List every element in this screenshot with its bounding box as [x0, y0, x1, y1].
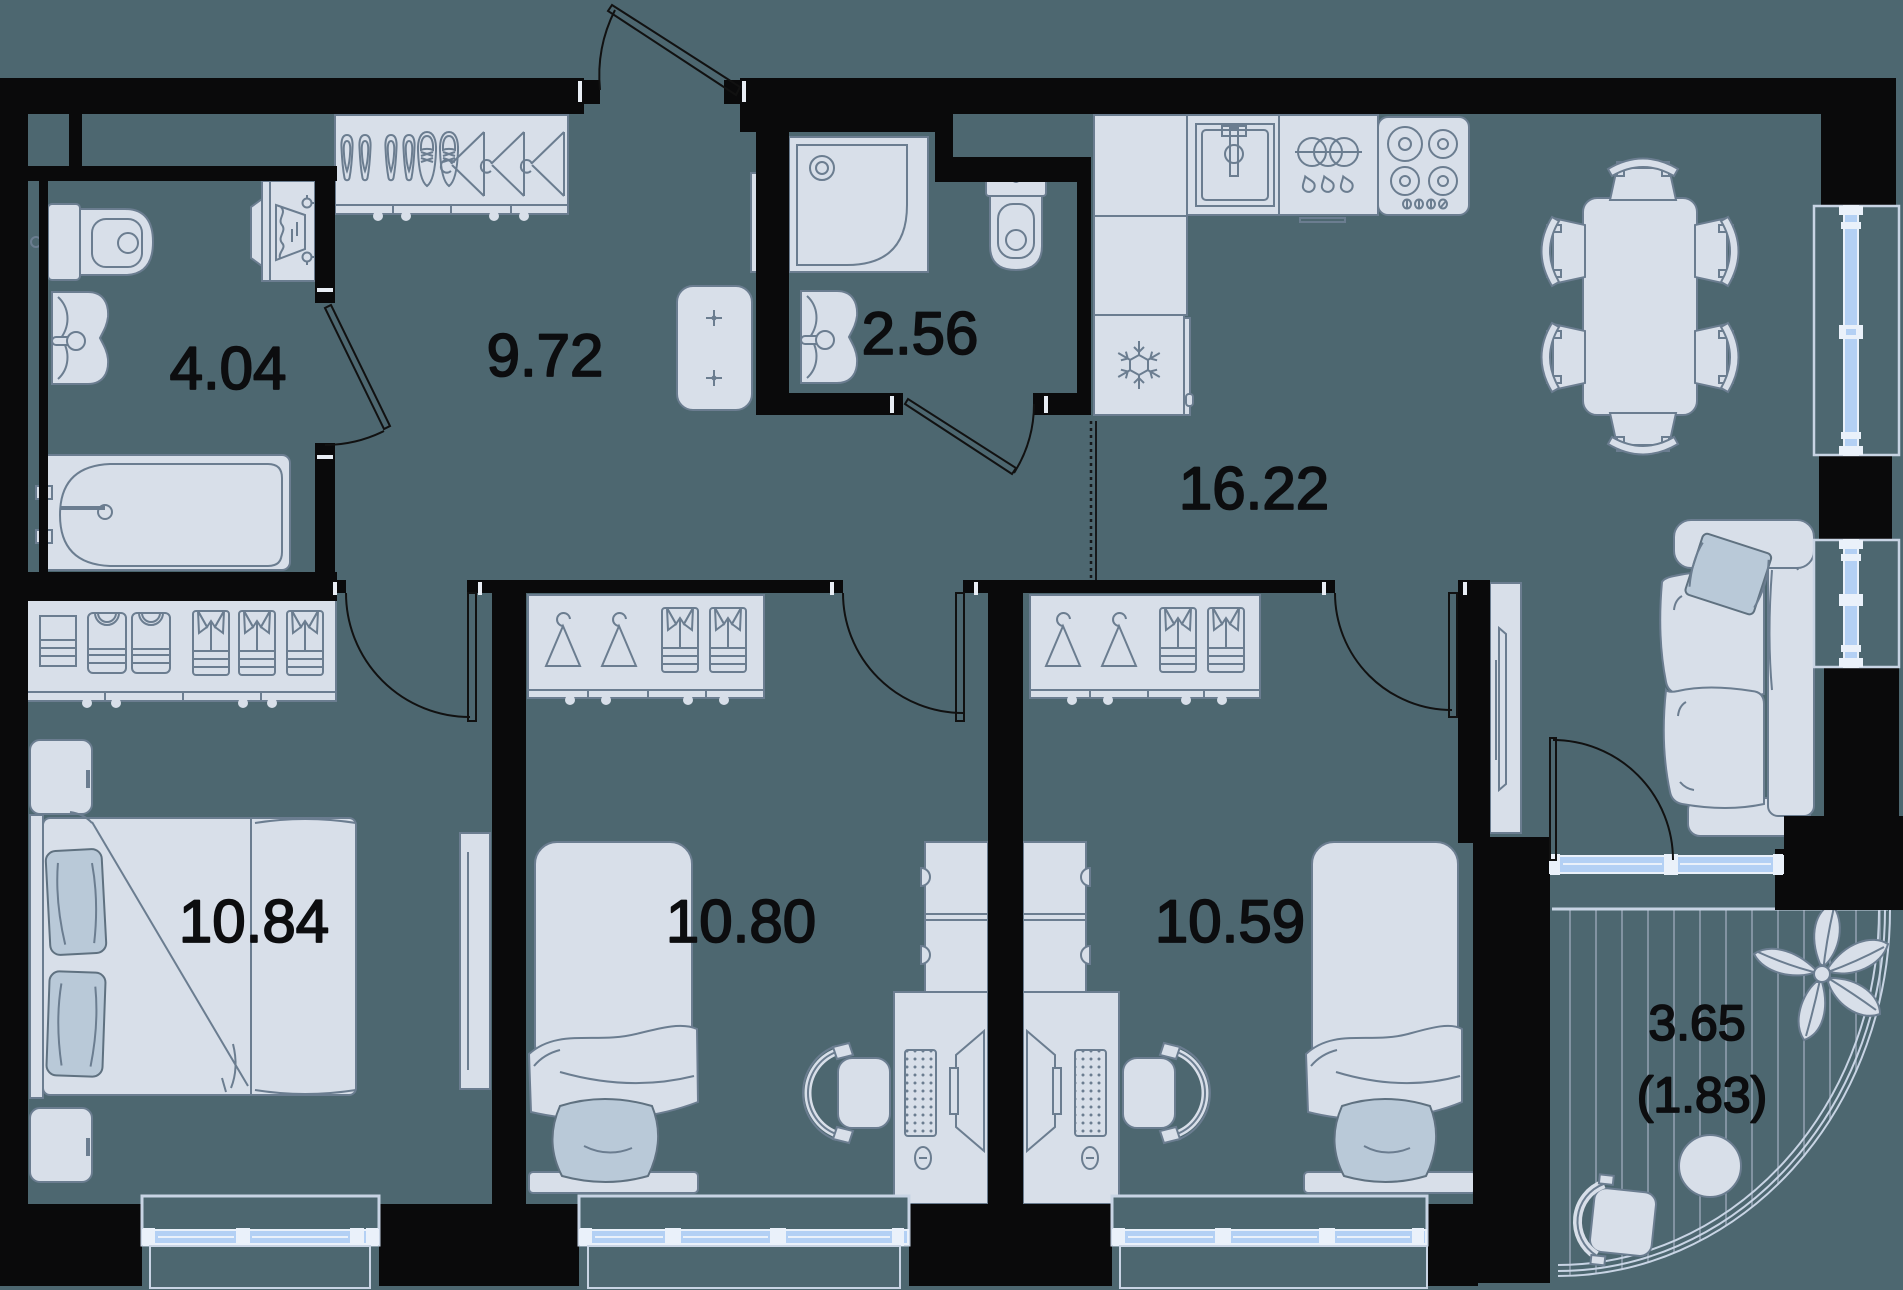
svg-text:10.59: 10.59 [1155, 888, 1305, 955]
svg-text:9.72: 9.72 [487, 322, 604, 389]
svg-text:(1.83): (1.83) [1637, 1067, 1768, 1123]
svg-text:3.65: 3.65 [1648, 995, 1745, 1051]
svg-text:10.80: 10.80 [666, 888, 816, 955]
svg-text:16.22: 16.22 [1179, 455, 1329, 522]
svg-text:2.56: 2.56 [862, 300, 979, 367]
svg-text:10.84: 10.84 [179, 888, 329, 955]
svg-text:4.04: 4.04 [170, 335, 287, 402]
